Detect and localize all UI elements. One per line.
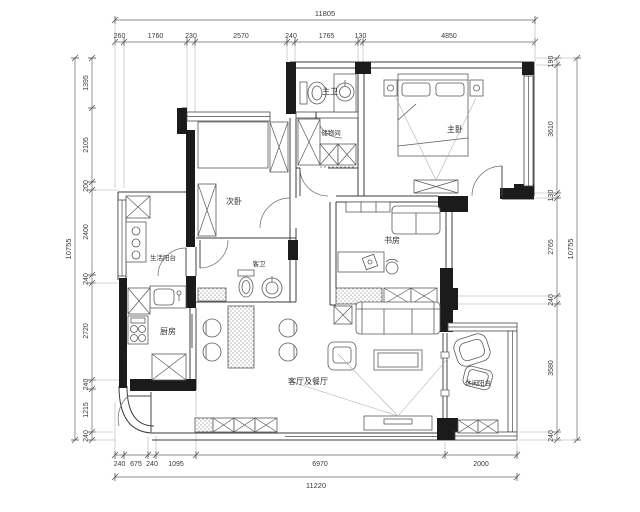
room-label-kitchen: 厨房	[160, 326, 176, 336]
washer-service-balcony	[126, 196, 150, 218]
dining-table	[228, 306, 254, 368]
dim-top-seg: 1760	[148, 33, 164, 40]
dresser-master-bedroom	[414, 180, 458, 193]
toilet-guest-bath	[238, 270, 254, 297]
dim-top-seg: 1765	[319, 33, 335, 40]
dim-top-seg: 130	[355, 33, 367, 40]
nightstand-right	[470, 80, 483, 96]
bed-second-bedroom	[198, 122, 268, 168]
room-label-living-dining: 客厅及餐厅	[288, 376, 328, 386]
dim-left-seg: 240	[83, 273, 90, 285]
insulation-hatch-master-bath	[296, 112, 358, 118]
shoe-cabinet-hatch	[195, 418, 213, 432]
cabinet-storage-bottom	[320, 144, 356, 165]
dim-left-seg: 2720	[83, 323, 90, 339]
dim-bottom-seg: 1095	[168, 461, 184, 468]
utility-unit-service-balcony	[126, 222, 146, 262]
dim-bottom-seg: 240	[114, 461, 126, 468]
window-leisure-balcony-right	[508, 331, 517, 432]
dim-top-seg: 2570	[233, 33, 249, 40]
dim-left-seg: 240	[83, 379, 90, 391]
dim-bottom-seg: 2000	[473, 461, 489, 468]
dim-left-total: 10755	[64, 239, 73, 260]
desk-study	[338, 252, 384, 272]
room-label-storage: 储物间	[321, 128, 341, 137]
window-leisure-balcony-top	[448, 323, 517, 331]
dim-right-seg: 240	[548, 430, 555, 442]
shelf-study	[346, 202, 390, 212]
loveseat-study	[392, 206, 440, 234]
window-master-bedroom	[524, 76, 533, 186]
room-label-study: 书房	[384, 235, 400, 245]
room-label-service-balcony: 生活阳台	[150, 253, 176, 262]
shoe-cabinet	[213, 418, 277, 432]
side-table	[334, 306, 352, 324]
dim-bottom-seg: 240	[146, 461, 158, 468]
room-label-master-bedroom: 主卧	[447, 124, 463, 134]
dim-right-seg: 2765	[548, 239, 555, 255]
dim-right-seg: 130	[548, 190, 555, 202]
dim-bottom-total: 11220	[306, 481, 326, 490]
wardrobe-storage-left	[298, 119, 320, 165]
room-label-second-bedroom: 次卧	[226, 196, 242, 206]
cabinet-second-bedroom-left	[198, 184, 216, 236]
room-label-leisure-balcony: 休闲阳台	[465, 378, 491, 387]
nightstand-left	[384, 80, 397, 96]
fridge-kitchen	[152, 354, 186, 380]
dim-left-seg: 200	[83, 180, 90, 192]
coffee-table	[374, 350, 422, 370]
dim-right-seg: 190	[548, 56, 555, 68]
room-label-guest-bath: 客卫	[253, 259, 267, 268]
dim-bottom-seg: 6970	[312, 461, 328, 468]
tv-console	[364, 416, 432, 430]
dim-left-seg: 240	[83, 430, 90, 442]
window-service-balcony	[118, 200, 126, 276]
dim-right-seg: 3610	[548, 121, 555, 137]
dim-top-total: 11805	[315, 9, 335, 18]
dim-right-seg: 240	[548, 294, 555, 306]
dim-left-seg: 1395	[83, 75, 90, 91]
dim-left-seg: 2105	[83, 137, 90, 153]
bed-master-bedroom	[398, 74, 468, 156]
dim-left-seg: 1215	[83, 402, 90, 418]
stove-kitchen	[128, 316, 148, 344]
floor-plan-canvas: 11805 260 1760 230 2570 240 1765 130 485…	[0, 0, 640, 512]
wardrobe-second-bedroom	[270, 122, 288, 172]
window-second-bedroom	[187, 112, 270, 121]
dim-right-seg: 3580	[548, 360, 555, 376]
armchair	[328, 342, 356, 370]
counter-kitchen	[128, 288, 150, 314]
sink-kitchen	[150, 286, 186, 308]
sofa	[356, 302, 440, 334]
dim-top-seg: 260	[114, 33, 126, 40]
dim-left-seg: 2400	[83, 224, 90, 240]
dim-top-seg: 230	[185, 33, 197, 40]
dim-top-seg: 4850	[441, 33, 457, 40]
paper-background	[0, 0, 640, 512]
dim-right-total: 10755	[566, 239, 575, 260]
dim-top-seg: 240	[285, 33, 297, 40]
shower-guest-bath	[198, 288, 226, 301]
cabinet-balcony	[458, 420, 498, 433]
dim-bottom-seg: 675	[130, 461, 142, 468]
room-label-master-bath: 主卫	[322, 86, 338, 96]
